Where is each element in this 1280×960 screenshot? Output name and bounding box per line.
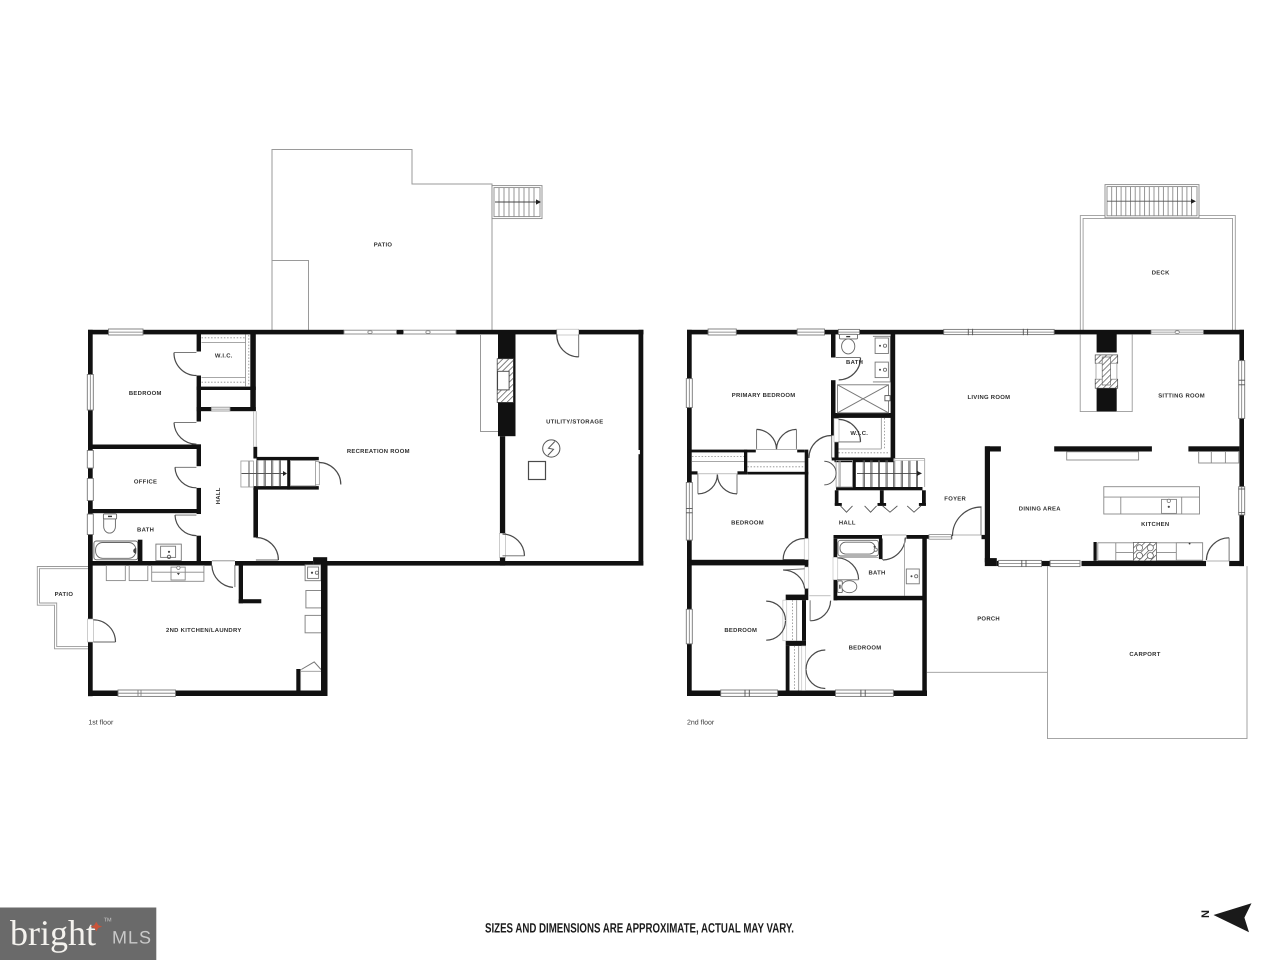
svg-text:BEDROOM: BEDROOM [849, 645, 882, 652]
svg-text:DECK: DECK [1152, 269, 1170, 276]
svg-text:2ND KITCHEN/LAUNDRY: 2ND KITCHEN/LAUNDRY [166, 627, 242, 634]
svg-text:RECREATION ROOM: RECREATION ROOM [347, 448, 410, 455]
svg-text:HALL: HALL [215, 487, 222, 504]
svg-text:2nd floor: 2nd floor [687, 719, 715, 727]
svg-text:bright: bright [10, 913, 96, 953]
svg-text:1st floor: 1st floor [88, 719, 114, 727]
svg-text:W.I.C.: W.I.C. [215, 353, 233, 360]
svg-text:SIZES AND DIMENSIONS ARE APPRO: SIZES AND DIMENSIONS ARE APPROXIMATE, AC… [485, 921, 794, 936]
svg-text:DINING AREA: DINING AREA [1019, 506, 1061, 513]
svg-text:OFFICE: OFFICE [134, 478, 157, 485]
svg-text:BATH: BATH [868, 569, 885, 576]
svg-text:PATIO: PATIO [55, 591, 74, 598]
svg-text:UTILITY/STORAGE: UTILITY/STORAGE [546, 419, 603, 426]
svg-text:BEDROOM: BEDROOM [731, 519, 764, 526]
svg-text:BEDROOM: BEDROOM [724, 627, 757, 634]
svg-text:BEDROOM: BEDROOM [129, 390, 162, 397]
svg-text:LIVING ROOM: LIVING ROOM [967, 394, 1010, 401]
svg-text:MLS: MLS [112, 928, 152, 948]
svg-text:BATH: BATH [137, 527, 154, 534]
svg-text:HALL: HALL [839, 519, 856, 526]
svg-text:PRIMARY BEDROOM: PRIMARY BEDROOM [732, 392, 796, 399]
svg-text:BATH: BATH [846, 359, 863, 366]
svg-text:PATIO: PATIO [374, 242, 393, 249]
svg-text:KITCHEN: KITCHEN [1141, 521, 1169, 528]
svg-text:TM: TM [104, 918, 112, 924]
svg-text:FOYER: FOYER [944, 496, 966, 503]
svg-text:SITTING ROOM: SITTING ROOM [1158, 393, 1205, 400]
svg-text:PORCH: PORCH [977, 616, 1000, 623]
svg-text:W.I.C.: W.I.C. [850, 430, 868, 437]
svg-text:CARPORT: CARPORT [1129, 651, 1160, 658]
svg-text:N: N [1200, 910, 1212, 918]
